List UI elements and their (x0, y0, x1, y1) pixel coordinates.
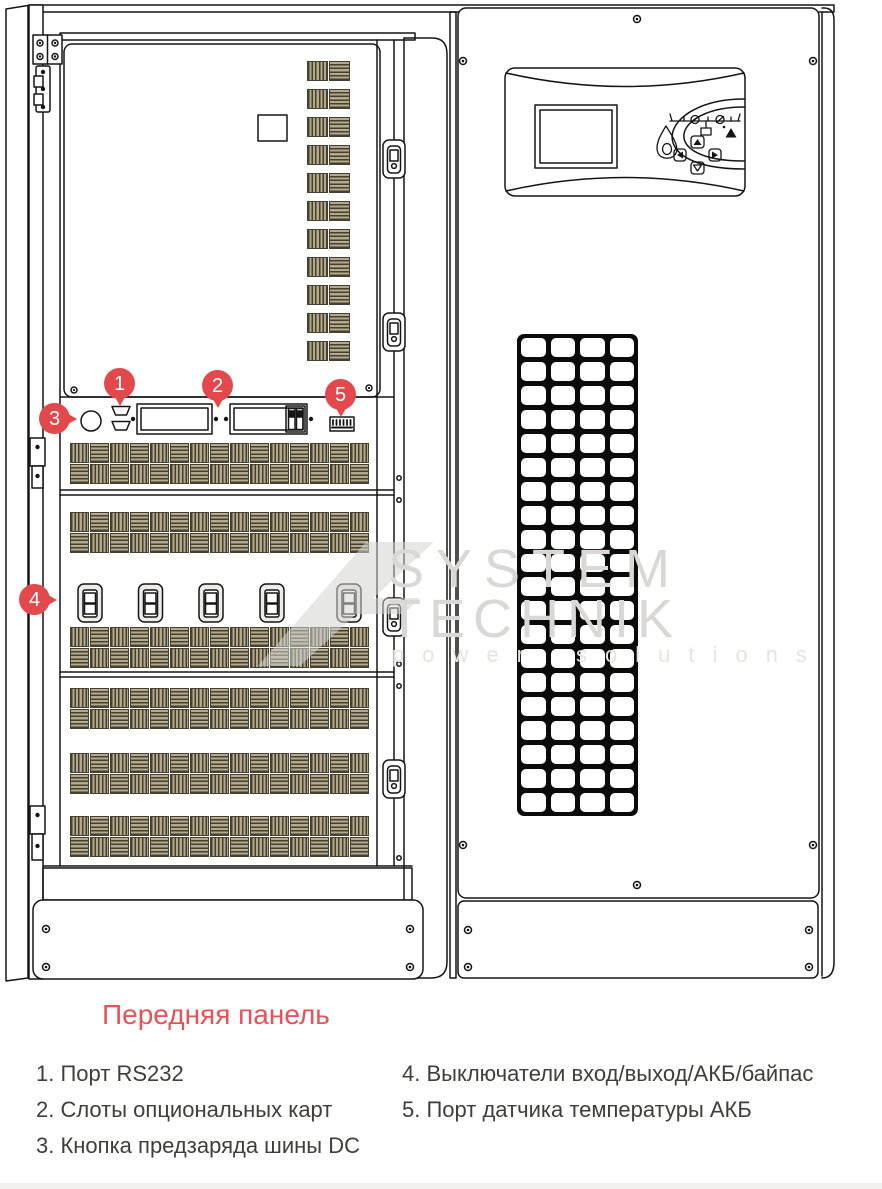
vent-tile (270, 753, 289, 773)
vent-tile (210, 533, 229, 553)
grille-slot (521, 769, 546, 788)
grille-slot (521, 410, 546, 429)
hinge-bracket (34, 66, 50, 112)
option-card-slot-1 (137, 404, 212, 434)
marker-label: 4 (29, 590, 40, 610)
grille-slot (551, 434, 576, 453)
grille-slot (610, 506, 635, 525)
vent-tile (190, 753, 209, 773)
vent-tile (290, 816, 309, 836)
right-cabinet (450, 8, 834, 978)
grille-slot (551, 769, 576, 788)
vent-row (70, 753, 369, 794)
vent-tile (170, 512, 189, 532)
grille-slot (610, 769, 635, 788)
vent-tile (270, 533, 289, 553)
hinge-low (30, 806, 45, 860)
grille-slot (521, 506, 546, 525)
vent-tile (210, 816, 229, 836)
door-latch (383, 760, 405, 798)
vent-tile (110, 533, 129, 553)
grille-slot (610, 410, 635, 429)
grille-slot (551, 673, 576, 692)
vent-tile (90, 709, 109, 729)
vent-tile (150, 774, 169, 794)
vent-tile (70, 627, 89, 647)
vent-row (70, 512, 369, 553)
vent-tile (190, 443, 209, 463)
vent-tile (170, 688, 189, 708)
grille-slot (580, 458, 605, 477)
vent-tile (90, 443, 109, 463)
door-hinge-top (33, 35, 62, 64)
vent-tile (290, 533, 309, 553)
vent-tile (270, 837, 289, 857)
vent-tile (70, 753, 89, 773)
marker-label: 1 (114, 374, 125, 394)
grille-slot (580, 577, 605, 596)
page-footer-bar (0, 1183, 882, 1189)
callout-marker-5: 5 (325, 379, 356, 410)
vent-tile (230, 816, 249, 836)
vent-tile (150, 709, 169, 729)
vent-tile (290, 464, 309, 484)
grille-slot (580, 362, 605, 381)
callout-marker-1: 1 (104, 368, 135, 399)
dc-precharge-button (81, 411, 101, 431)
vent-tile (230, 648, 249, 668)
vent-tile (310, 753, 329, 773)
callout-marker-4: 4 (19, 584, 50, 615)
grille-slot (580, 769, 605, 788)
vent-tile (150, 512, 169, 532)
vent-tile (329, 117, 350, 137)
vent-tile (170, 648, 189, 668)
vent-tile (250, 464, 269, 484)
vent-tile (70, 443, 89, 463)
grille-slot (610, 673, 635, 692)
vent-row (70, 816, 369, 857)
vent-tile (150, 627, 169, 647)
vent-tile (310, 464, 329, 484)
grille-slot (551, 793, 576, 812)
vent-tile (307, 257, 328, 277)
breaker-switch (199, 584, 223, 622)
legend-item: 3. Кнопка предзаряда шины DC (36, 1128, 396, 1164)
vent-row (70, 443, 369, 484)
vent-tile (329, 341, 350, 361)
grille-slot (521, 697, 546, 716)
vent-tile (90, 816, 109, 836)
vent-column (307, 61, 350, 361)
diagram-title: Передняя панель (102, 999, 330, 1031)
vent-tile (307, 145, 328, 165)
grille-slot (580, 410, 605, 429)
vent-tile (330, 688, 349, 708)
vent-tile (307, 313, 328, 333)
grille-slot (521, 554, 546, 573)
grille-slot (580, 338, 605, 357)
vent-tile (70, 709, 89, 729)
grille-slot (580, 554, 605, 573)
grille-slot (610, 721, 635, 740)
grille-slot (521, 673, 546, 692)
grille-slot (551, 649, 576, 668)
grille-slot (521, 434, 546, 453)
vent-tile (150, 443, 169, 463)
grille-slot (610, 362, 635, 381)
vent-tile (230, 837, 249, 857)
vent-tile (130, 709, 149, 729)
grille-slot (551, 482, 576, 501)
vent-tile (170, 709, 189, 729)
vent-tile (130, 816, 149, 836)
vent-tile (250, 648, 269, 668)
grille-slot (610, 577, 635, 596)
vent-tile (110, 443, 129, 463)
vent-tile (210, 443, 229, 463)
vent-tile (329, 89, 350, 109)
vent-tile (90, 774, 109, 794)
vent-tile (307, 117, 328, 137)
vent-tile (90, 627, 109, 647)
vent-tile (150, 688, 169, 708)
vent-tile (230, 443, 249, 463)
vent-tile (170, 837, 189, 857)
legend-item: 2. Слоты опциональных карт (36, 1092, 396, 1128)
legend-item: 1. Порт RS232 (36, 1056, 396, 1092)
vent-tile (329, 145, 350, 165)
hinge-mid (30, 438, 45, 488)
vent-tile (330, 464, 349, 484)
vent-tile (290, 709, 309, 729)
vent-tile (307, 61, 328, 81)
vent-tile (110, 648, 129, 668)
grille-slot (580, 386, 605, 405)
vent-tile (307, 229, 328, 249)
breaker-switch (78, 584, 102, 622)
vent-tile (130, 688, 149, 708)
vent-tile (70, 512, 89, 532)
vent-tile (90, 648, 109, 668)
grille-slot (610, 386, 635, 405)
vent-tile (190, 533, 209, 553)
vent-tile (307, 285, 328, 305)
vent-tile (130, 533, 149, 553)
grille-slot (580, 649, 605, 668)
vent-tile (110, 688, 129, 708)
vent-tile (130, 648, 149, 668)
vent-tile (130, 464, 149, 484)
vent-tile (270, 816, 289, 836)
grille-slot (580, 434, 605, 453)
left-side-strip (450, 12, 456, 978)
grille-slot (610, 625, 635, 644)
legend-column-left: 1. Порт RS232 2. Слоты опциональных карт… (36, 1056, 396, 1164)
vent-tile (350, 753, 369, 773)
vent-tile (350, 837, 369, 857)
vent-tile (170, 816, 189, 836)
vent-tile (190, 688, 209, 708)
vent-tile (170, 774, 189, 794)
battery-temp-sensor-port (330, 417, 354, 431)
vent-tile (90, 688, 109, 708)
door-latch (383, 313, 405, 351)
vent-tile (329, 173, 350, 193)
vent-tile (270, 648, 289, 668)
marker-label: 2 (212, 376, 223, 396)
vent-tile (310, 443, 329, 463)
vent-tile (170, 627, 189, 647)
grille-slot (610, 458, 635, 477)
grille-slot (521, 577, 546, 596)
plinth-panel (33, 900, 423, 979)
vent-tile (290, 688, 309, 708)
callout-marker-3: 3 (39, 403, 70, 434)
vent-tile (310, 709, 329, 729)
base-recess (43, 868, 412, 900)
vent-tile (190, 709, 209, 729)
right-side-panel (404, 38, 447, 978)
vent-tile (230, 627, 249, 647)
vent-tile (330, 774, 349, 794)
vent-tile (110, 464, 129, 484)
vent-tile (210, 464, 229, 484)
vent-tile (230, 709, 249, 729)
vent-tile (310, 512, 329, 532)
breaker-switch (337, 584, 361, 622)
grille-slot (521, 362, 546, 381)
grille-slot (551, 697, 576, 716)
vent-tile (310, 627, 329, 647)
vent-tile (170, 753, 189, 773)
vent-tile (310, 837, 329, 857)
vent-tile (90, 753, 109, 773)
vent-tile (170, 464, 189, 484)
grille-slot (521, 793, 546, 812)
vent-tile (210, 774, 229, 794)
vent-tile (210, 753, 229, 773)
grille-slot (580, 530, 605, 549)
grille-slot (551, 577, 576, 596)
vent-tile (210, 709, 229, 729)
grille-slot (551, 338, 576, 357)
vent-tile (307, 173, 328, 193)
vent-tile (250, 688, 269, 708)
grille-slot (521, 649, 546, 668)
ups-front-panel-diagram: 1 2 3 4 5 SYSTEM TECHNIK power solutions… (0, 0, 882, 1189)
vent-tile (310, 816, 329, 836)
breaker-switch (139, 584, 163, 622)
vent-tile (330, 627, 349, 647)
vent-tile (70, 648, 89, 668)
vent-tile (110, 512, 129, 532)
callout-marker-2: 2 (202, 370, 233, 401)
vent-tile (350, 774, 369, 794)
grille-slot (610, 338, 635, 357)
grille-slot (610, 554, 635, 573)
vent-tile (350, 627, 369, 647)
vent-tile (270, 443, 289, 463)
grille-slot (551, 362, 576, 381)
vent-tile (230, 753, 249, 773)
vent-tile (250, 753, 269, 773)
grille-slot (610, 649, 635, 668)
vent-tile (130, 627, 149, 647)
vent-tile (310, 774, 329, 794)
vent-tile (350, 443, 369, 463)
door-vent-grille (517, 334, 638, 816)
vent-tile (250, 533, 269, 553)
vent-tile (330, 512, 349, 532)
grille-slot (521, 482, 546, 501)
grille-slot (551, 386, 576, 405)
vent-tile (210, 837, 229, 857)
vent-tile (150, 753, 169, 773)
vent-tile (110, 753, 129, 773)
vent-tile (270, 627, 289, 647)
vent-tile (130, 512, 149, 532)
grille-slot (580, 721, 605, 740)
vent-tile (190, 464, 209, 484)
vent-tile (330, 648, 349, 668)
vent-tile (329, 61, 350, 81)
vent-tile (330, 443, 349, 463)
vent-tile (250, 774, 269, 794)
vent-tile (210, 512, 229, 532)
vent-tile (290, 837, 309, 857)
vent-tile (250, 837, 269, 857)
open-door-edge (6, 6, 28, 982)
base-panel (458, 901, 818, 978)
vent-tile (190, 627, 209, 647)
vent-tile (270, 709, 289, 729)
vent-tile (70, 533, 89, 553)
option-card-slot-2 (230, 404, 307, 434)
vent-tile (230, 688, 249, 708)
grille-slot (551, 530, 576, 549)
vent-tile (290, 648, 309, 668)
vent-tile (329, 229, 350, 249)
vent-row (70, 688, 369, 729)
grille-slot (551, 554, 576, 573)
grille-slot (521, 458, 546, 477)
vent-tile (190, 648, 209, 668)
vent-tile (90, 464, 109, 484)
grille-slot (521, 625, 546, 644)
vent-tile (170, 443, 189, 463)
vent-tile (70, 816, 89, 836)
vent-tile (230, 512, 249, 532)
vent-tile (330, 533, 349, 553)
vent-tile (90, 512, 109, 532)
grille-slot (580, 697, 605, 716)
vent-tile (329, 257, 350, 277)
vent-tile (270, 464, 289, 484)
grille-slot (580, 601, 605, 620)
grille-slot (580, 745, 605, 764)
vent-tile (307, 341, 328, 361)
grille-slot (521, 745, 546, 764)
vent-tile (110, 816, 129, 836)
grille-slot (610, 745, 635, 764)
grille-slot (521, 338, 546, 357)
grille-slot (580, 625, 605, 644)
grille-slot (551, 625, 576, 644)
vent-tile (350, 709, 369, 729)
grille-slot (521, 601, 546, 620)
vent-tile (170, 533, 189, 553)
vent-tile (350, 512, 369, 532)
vent-tile (329, 313, 350, 333)
vent-tile (210, 688, 229, 708)
vent-tile (350, 464, 369, 484)
vent-tile (190, 816, 209, 836)
vent-tile (250, 443, 269, 463)
vent-tile (350, 648, 369, 668)
grille-slot (580, 793, 605, 812)
vent-tile (70, 688, 89, 708)
vent-tile (350, 816, 369, 836)
vent-tile (330, 753, 349, 773)
vent-tile (150, 533, 169, 553)
grille-slot (610, 482, 635, 501)
vent-tile (90, 533, 109, 553)
vent-tile (290, 774, 309, 794)
grille-slot (551, 506, 576, 525)
grille-slot (551, 410, 576, 429)
vent-tile (190, 512, 209, 532)
vent-tile (310, 533, 329, 553)
vent-tile (330, 837, 349, 857)
vent-tile (230, 533, 249, 553)
vent-tile (270, 512, 289, 532)
vent-tile (250, 627, 269, 647)
rating-label (258, 115, 287, 141)
vent-tile (307, 201, 328, 221)
grille-slot (551, 721, 576, 740)
legend-item: 4. Выключатели вход/выход/АКБ/байпас (402, 1056, 862, 1092)
grille-slot (580, 506, 605, 525)
ports-row (81, 404, 354, 434)
vent-tile (290, 753, 309, 773)
vent-tile (230, 464, 249, 484)
vent-tile (329, 201, 350, 221)
rs232-port (112, 407, 130, 431)
vent-tile (250, 709, 269, 729)
grille-slot (610, 793, 635, 812)
vent-tile (290, 512, 309, 532)
vent-tile (190, 837, 209, 857)
vent-tile (110, 709, 129, 729)
legend-column-right: 4. Выключатели вход/выход/АКБ/байпас 5. … (402, 1056, 862, 1128)
grille-slot (551, 458, 576, 477)
vent-tile (329, 285, 350, 305)
vent-tile (130, 837, 149, 857)
vent-tile (130, 753, 149, 773)
vent-tile (150, 648, 169, 668)
display-panel (505, 68, 745, 196)
top-frame-bar (60, 33, 415, 40)
vent-tile (290, 627, 309, 647)
vent-tile (250, 816, 269, 836)
vent-tile (150, 464, 169, 484)
vent-tile (70, 774, 89, 794)
grille-slot (551, 601, 576, 620)
vent-tile (190, 774, 209, 794)
breaker-switch (260, 584, 284, 622)
grille-slot (580, 673, 605, 692)
